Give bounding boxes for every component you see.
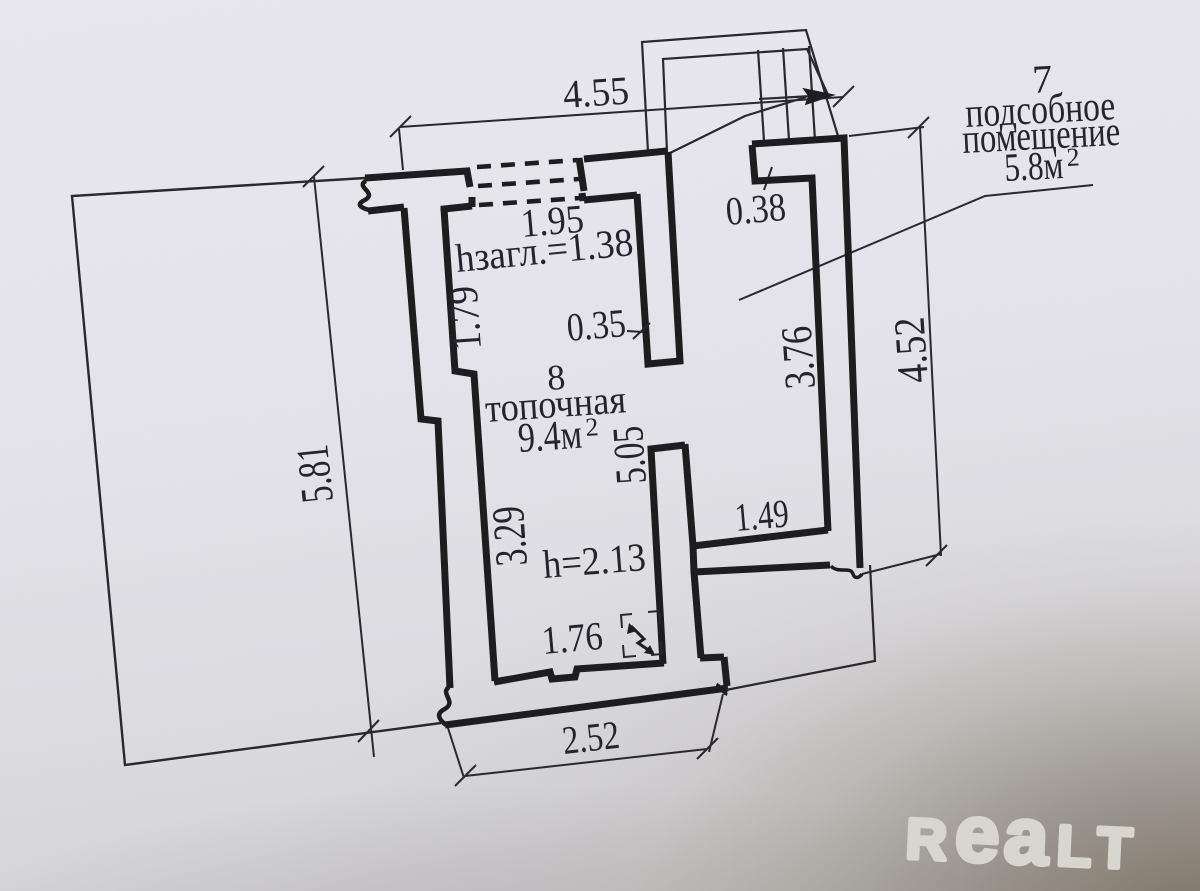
svg-text:3.76: 3.76 [772, 324, 825, 390]
svg-text:0.35: 0.35 [565, 300, 628, 350]
svg-text:1.79: 1.79 [441, 284, 491, 351]
svg-text:5.8м: 5.8м [1003, 142, 1064, 190]
svg-text:hзагл.=1.38: hзагл.=1.38 [454, 219, 635, 281]
svg-text:h=2.13: h=2.13 [541, 534, 647, 587]
svg-text:2: 2 [584, 412, 599, 442]
svg-text:2.52: 2.52 [560, 712, 622, 763]
svg-text:1.76: 1.76 [540, 613, 605, 663]
svg-text:e: e [953, 788, 1001, 879]
svg-text:LT: LT [1055, 814, 1143, 882]
svg-text:0.38: 0.38 [724, 184, 788, 234]
svg-text:3.29: 3.29 [482, 504, 537, 567]
svg-text:R: R [904, 807, 955, 873]
svg-text:a: a [1002, 791, 1051, 882]
svg-text:5.81: 5.81 [286, 442, 343, 505]
svg-text:9.4м: 9.4м [516, 412, 583, 462]
svg-text:4.52: 4.52 [884, 315, 937, 384]
svg-text:4.55: 4.55 [561, 67, 630, 116]
svg-text:1.49: 1.49 [733, 490, 791, 540]
svg-text:2: 2 [1066, 142, 1080, 172]
